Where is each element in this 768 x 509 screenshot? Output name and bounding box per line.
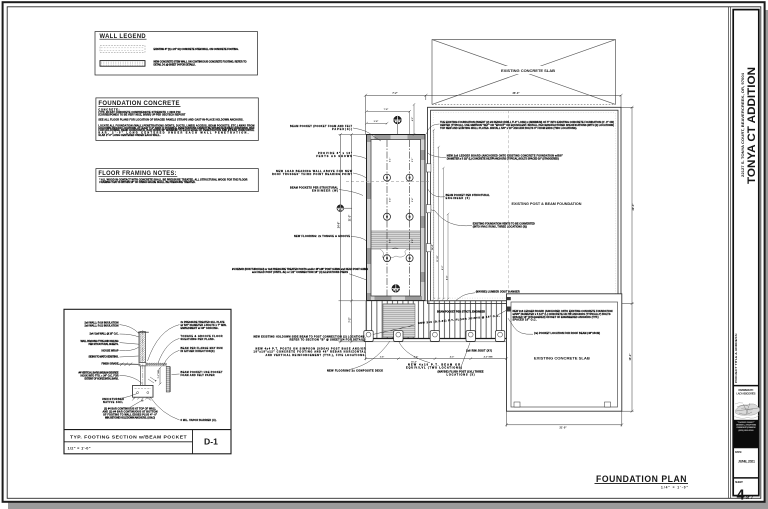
svg-text:NATIVE SOIL: NATIVE SOIL [103, 401, 124, 404]
svg-text:36'-0": 36'-0" [512, 91, 520, 95]
svg-text:PROJECT TITLE & ADDRESS:: PROJECT TITLE & ADDRESS: [734, 333, 738, 383]
svg-text:SHEET:: SHEET: [735, 480, 743, 484]
svg-text:1/4" = 1'-0": 1/4" = 1'-0" [661, 486, 688, 490]
svg-text:JUNE, 2021: JUNE, 2021 [738, 459, 755, 463]
svg-text:7'-2": 7'-2" [392, 92, 397, 95]
svg-text:FOAM AND FELT PAPER: FOAM AND FELT PAPER [181, 374, 215, 377]
svg-text:BEAM POCKET PER STRCTL ENGINE: BEAM POCKET PER STRCTL ENGINEER [437, 310, 485, 313]
svg-text:11'-10": 11'-10" [437, 255, 439, 262]
svg-text:EMBEDMENT at 48" SPACING.: EMBEDMENT at 48" SPACING. [181, 327, 219, 330]
svg-text:SHEATHING PER PLANS.: SHEATHING PER PLANS. [181, 338, 215, 341]
svg-text:SIDING TO MATCH EXISTING.: SIDING TO MATCH EXISTING. [89, 356, 119, 359]
svg-text:8'-2": 8'-2" [442, 266, 444, 270]
svg-text:16'-2": 16'-2" [628, 353, 632, 361]
svg-text:22127 S. TONYA COURT, BEAVERCR: 22127 S. TONYA COURT, BEAVERCREEK, OR, 9… [741, 73, 745, 177]
svg-text:EXTENT OF HORIZONTAL BARS.: EXTENT OF HORIZONTAL BARS. [85, 377, 119, 380]
svg-text:EXISTING CONCRETE SLAB: EXISTING CONCRETE SLAB [501, 69, 556, 73]
svg-text:ENGINEER (5): ENGINEER (5) [446, 197, 470, 200]
svg-text:4'-2": 4'-2" [411, 117, 414, 121]
svg-text:TYP. FOOTING SECTION w/BEAM PO: TYP. FOOTING SECTION w/BEAM POCKET [70, 434, 187, 439]
svg-text:7'-2": 7'-2" [349, 317, 352, 322]
svg-text:(INTO HVAC RUNS, THREE LOCATIO: (INTO HVAC RUNS, THREE LOCATIONS (3)) [473, 225, 527, 228]
svg-text:HOUSE WRAP: HOUSE WRAP [102, 349, 119, 352]
svg-text:29'-0": 29'-0" [631, 203, 635, 211]
svg-text:21'-0": 21'-0" [559, 426, 567, 430]
svg-text:D-1: D-1 [204, 437, 218, 447]
svg-text:IN EITHER DIRECTION(S): IN EITHER DIRECTION(S) [181, 350, 215, 353]
svg-text:3'-4": 3'-4" [389, 198, 392, 202]
svg-text:4'-8": 4'-8" [445, 276, 448, 280]
svg-text:3'-1": 3'-1" [390, 158, 392, 162]
svg-text:"PACIFIC CREST": "PACIFIC CREST" [738, 421, 755, 424]
svg-text:4: 4 [737, 488, 745, 504]
svg-text:FOUNDATION PLAN: FOUNDATION PLAN [596, 473, 687, 484]
svg-text:TONYA CT ADDITION: TONYA CT ADDITION [746, 67, 758, 184]
svg-text:1/2" = 1'-0": 1/2" = 1'-0" [68, 447, 91, 451]
svg-text:8": 8" [155, 381, 157, 383]
svg-text:PER STRUCTURAL SHEETS.: PER STRUCTURAL SHEETS. [89, 343, 119, 346]
svg-text:24'-8": 24'-8" [338, 222, 341, 229]
svg-text:FINISH GRADE: FINISH GRADE [102, 362, 119, 365]
svg-text:EQUIV/LVL (TWO LOCATIONS): EQUIV/LVL (TWO LOCATIONS) [406, 367, 462, 370]
svg-text:2x6 WALL: R-21 INSULATION: 2x6 WALL: R-21 INSULATION [85, 324, 119, 327]
svg-text:TOP NEW AND EXISTING WALL PLAT: TOP NEW AND EXISTING WALL PLATES. INSTAL… [440, 127, 577, 130]
svg-text:EXISTING POST & BEAM FOUNDATIO: EXISTING POST & BEAM FOUNDATION [512, 202, 583, 206]
svg-text:NEW FLOORING 2x COMPOSITE DECK: NEW FLOORING 2x COMPOSITE DECK [327, 370, 383, 373]
svg-text:DETAIL D-1 @ SHEET S4 FOR DETA: DETAIL D-1 @ SHEET S4 FOR DETAILS. [154, 63, 196, 66]
svg-text:SLAB 2"-0" LONG CENTERED UNDER: SLAB 2"-0" LONG CENTERED UNDER EACH WALL… [98, 134, 160, 137]
svg-text:2x4 / 2x6 WALL @ 16" O.C.: 2x4 / 2x6 WALL @ 16" O.C. [90, 333, 119, 336]
svg-text:(CORRESPONDS TO BE VERY NICE,: (CORRESPONDS TO BE VERY NICE, BRRR) UP P… [98, 113, 185, 116]
svg-text:(re) POCKET LOCATION FOR ROOF: (re) POCKET LOCATION FOR ROOF BEAM (48"x… [534, 332, 600, 335]
svg-text:4'-3" MIN: 4'-3" MIN [484, 356, 493, 359]
svg-text:(MAYBE) LUMBER JOIST HANGER: (MAYBE) LUMBER JOIST HANGER [476, 291, 520, 294]
svg-text:DRAWINGS BY:: DRAWINGS BY: [739, 389, 754, 392]
svg-text:NEW FLOORING: 2x TONGUE & GRO: NEW FLOORING: 2x TONGUE & GROOVE [294, 235, 350, 238]
svg-text:DESIGN + DRAFTING: DESIGN + DRAFTING [736, 424, 756, 427]
svg-text:1'-6" MIN.: 1'-6" MIN. [158, 369, 160, 379]
svg-text:EXISTING 8" (±) x 24" SQ CONCR: EXISTING 8" (±) x 24" SQ CONCRETE STEM W… [154, 48, 239, 51]
svg-text:DATE:: DATE: [735, 450, 742, 454]
svg-text:6 MIL. VAPOR BARRIER (X).: 6 MIL. VAPOR BARRIER (X). [181, 419, 217, 422]
svg-text:FRAMING THAT IS WITHIN 18" OF: FRAMING THAT IS WITHIN 18" OF FINISH GRA… [99, 181, 195, 184]
svg-text:2x6 RIM JOIST (X?): 2x6 RIM JOIST (X?) [466, 349, 492, 352]
svg-text:SPACED 16" O.C.: SPACED 16" O.C. [513, 319, 537, 322]
svg-text:3'-6": 3'-6" [412, 239, 414, 243]
svg-text:3'-8": 3'-8" [374, 121, 379, 123]
svg-text:REFER TO SECTION "B" @ SHEET S: REFER TO SECTION "B" @ SHEET S4 FOR DETA… [290, 339, 366, 342]
svg-text:of 7: of 7 [746, 495, 754, 500]
svg-text:LACY ASSOCIATES: LACY ASSOCIATES [737, 393, 756, 396]
svg-text:MIN. BEYOND HOLDDOWN ANCHORS.: MIN. BEYOND HOLDDOWN ANCHORS. (U.N.O) [105, 417, 155, 420]
svg-text:OREGON CITY, OREGON: OREGON CITY, OREGON [737, 427, 757, 429]
svg-text:EXISTING CONCRETE SLAB: EXISTING CONCRETE SLAB [534, 356, 591, 360]
svg-text:SEE ALL FLOOR PLANS FOR LOCATI: SEE ALL FLOOR PLANS FOR LOCATION OF BRAC… [98, 119, 243, 122]
svg-text:21'-2": 21'-2" [349, 215, 352, 222]
svg-text:FLOOR FRAMING NOTES:: FLOOR FRAMING NOTES: [98, 170, 176, 177]
svg-text:ENGINEER (W): ENGINEER (W) [312, 189, 338, 192]
svg-text:PAPER(S)): PAPER(S)) [332, 128, 352, 131]
svg-text:3'-6": 3'-6" [390, 239, 392, 243]
svg-text:FOUNDATION CONCRETE: FOUNDATION CONCRETE [98, 100, 180, 107]
svg-text:AND VERTICAL REINFORCEMENT (TY: AND VERTICAL REINFORCEMENT (TYP.), FIVE … [266, 354, 366, 357]
svg-text:and DEAD POST (UNTIL #s) or 1/: and DEAD POST (UNTIL #s) or 1/2" CONNECT… [252, 271, 348, 274]
svg-text:3'-4": 3'-4" [411, 198, 414, 202]
svg-text:4'-3": 4'-3" [450, 356, 454, 359]
svg-text:7'-8": 7'-8" [384, 109, 389, 111]
svg-text:VENTS AS SHOWN: VENTS AS SHOWN [316, 155, 352, 158]
svg-text:(503) 555-0188: (503) 555-0188 [739, 430, 755, 432]
svg-text:LOCATIONS (3): LOCATIONS (3) [447, 374, 475, 377]
svg-text:3'-1": 3'-1" [412, 158, 414, 162]
svg-text:24'-4": 24'-4" [431, 244, 434, 250]
svg-text:3'-6": 3'-6" [380, 357, 384, 359]
svg-text:DIAMETER x 5 1/2" (L) CONCRET: DIAMETER x 5 1/2" (L) CONCRETE HILTI® AN… [447, 157, 559, 160]
